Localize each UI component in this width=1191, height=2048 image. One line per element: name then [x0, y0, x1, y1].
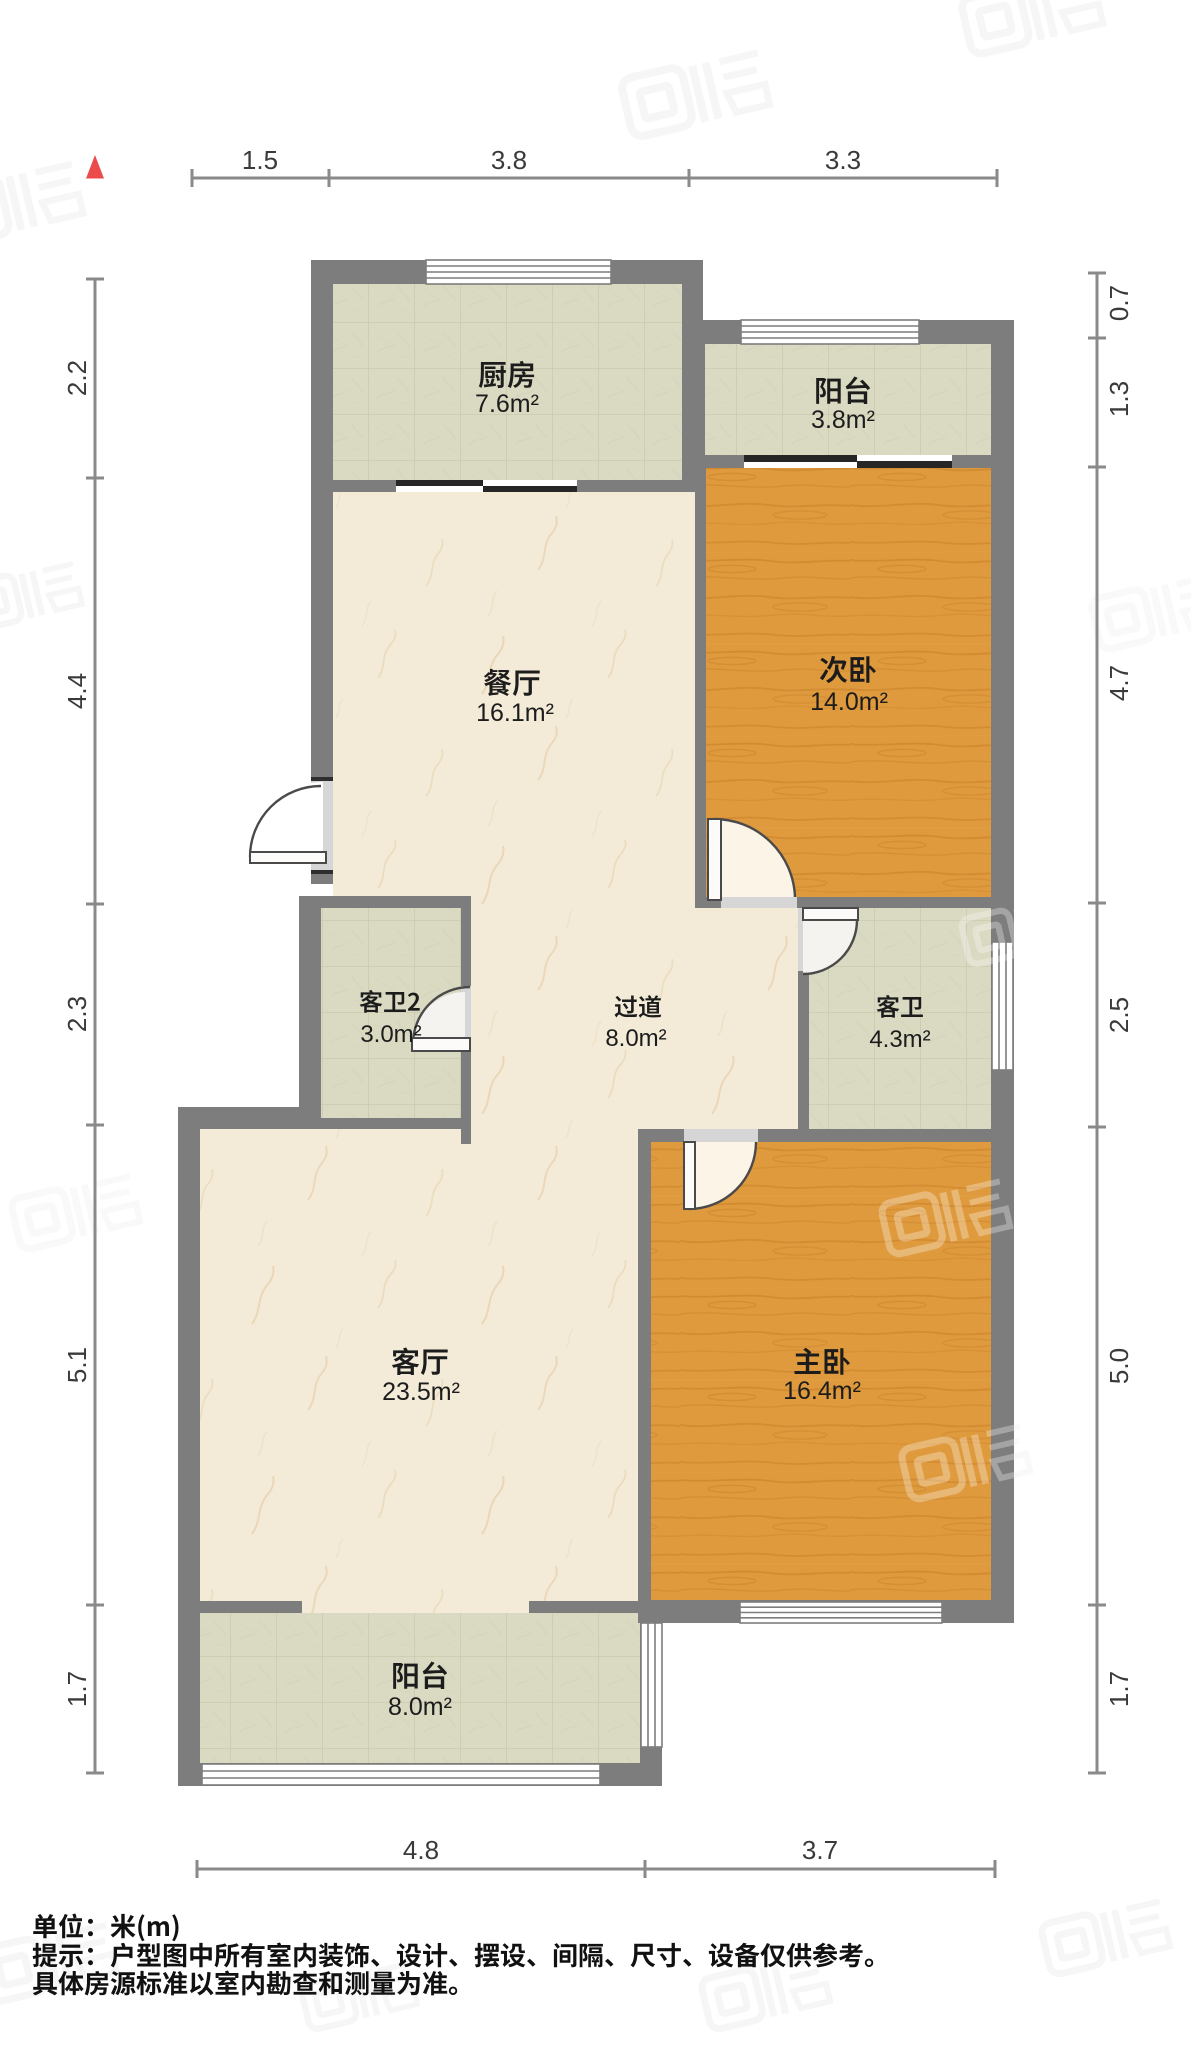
- svg-text:3.8: 3.8: [491, 145, 527, 175]
- svg-text:2.5: 2.5: [1104, 997, 1134, 1033]
- svg-text:5.1: 5.1: [62, 1347, 92, 1383]
- svg-text:3.3: 3.3: [825, 145, 861, 175]
- svg-text:1.7: 1.7: [1104, 1671, 1134, 1707]
- svg-text:2.2: 2.2: [62, 360, 92, 396]
- svg-text:4.4: 4.4: [62, 673, 92, 709]
- svg-text:8.0m²: 8.0m²: [388, 1693, 452, 1721]
- svg-text:4.3m²: 4.3m²: [869, 1026, 930, 1053]
- svg-text:5.0: 5.0: [1104, 1348, 1134, 1384]
- svg-text:4.8: 4.8: [403, 1835, 439, 1865]
- svg-text:3.7: 3.7: [802, 1835, 838, 1865]
- svg-text:16.1m²: 16.1m²: [476, 699, 554, 727]
- svg-text:1.5: 1.5: [242, 145, 278, 175]
- svg-text:14.0m²: 14.0m²: [810, 688, 888, 716]
- svg-text:4.7: 4.7: [1104, 665, 1134, 701]
- svg-text:1.7: 1.7: [62, 1671, 92, 1707]
- svg-text:0.7: 0.7: [1104, 285, 1134, 321]
- svg-text:16.4m²: 16.4m²: [783, 1377, 861, 1405]
- svg-text:8.0m²: 8.0m²: [605, 1025, 666, 1052]
- svg-text:2.3: 2.3: [62, 996, 92, 1032]
- svg-text:7.6m²: 7.6m²: [475, 390, 539, 418]
- svg-text:23.5m²: 23.5m²: [382, 1378, 460, 1406]
- svg-text:1.3: 1.3: [1104, 381, 1134, 417]
- svg-text:3.8m²: 3.8m²: [811, 406, 875, 434]
- svg-text:3.0m²: 3.0m²: [360, 1021, 421, 1048]
